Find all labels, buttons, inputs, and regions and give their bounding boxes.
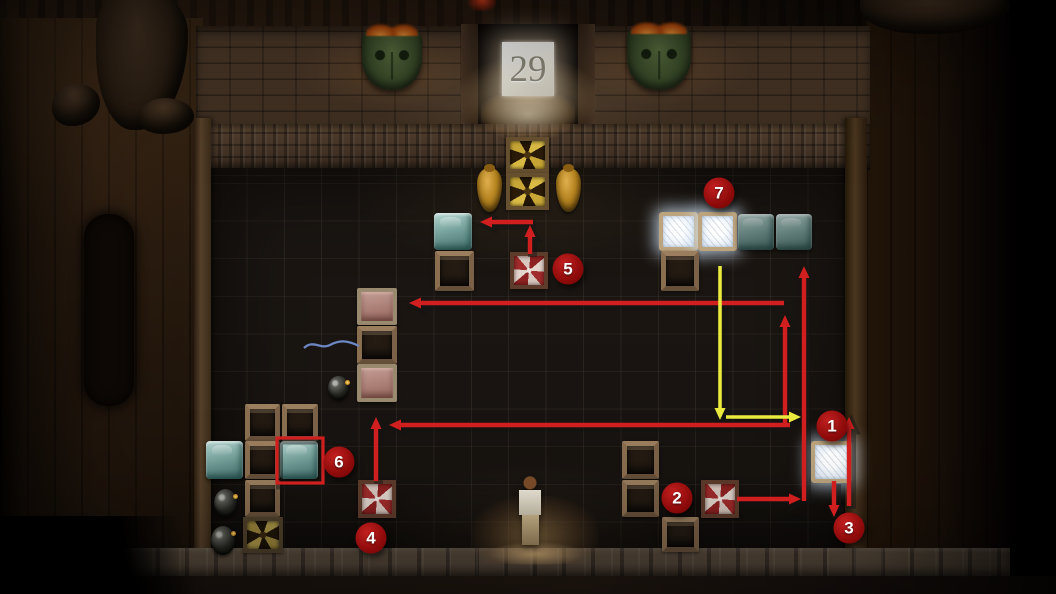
highlight-box-step-6 (277, 438, 323, 483)
game-screenshot-level-29: 29 1234567 (0, 0, 1056, 594)
annotation-overlay (0, 0, 1056, 594)
